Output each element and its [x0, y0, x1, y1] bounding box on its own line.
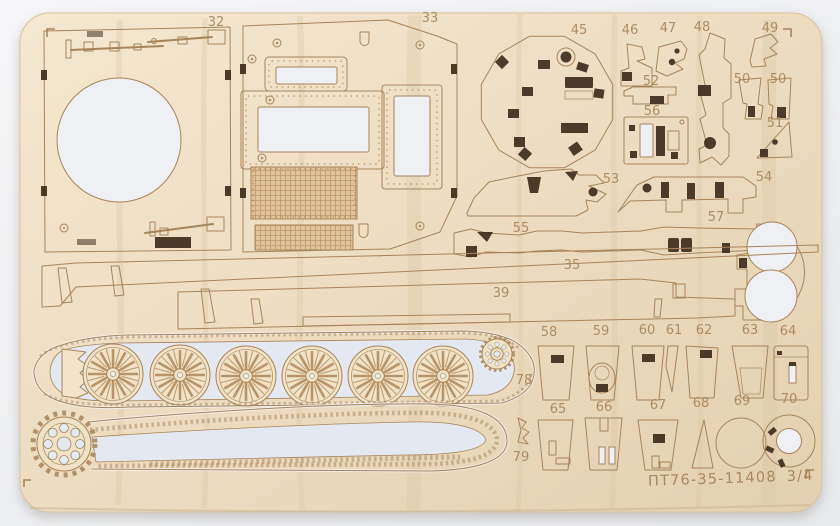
engine-grille — [255, 225, 353, 250]
deck-opening — [276, 67, 337, 84]
part-label-45: 45 — [571, 23, 588, 38]
part-label-39: 39 — [493, 286, 510, 301]
road-wheel — [413, 346, 473, 406]
part-label-63: 63 — [742, 323, 759, 338]
part-label-58: 58 — [541, 325, 558, 340]
part-label-60: 60 — [639, 323, 656, 338]
round-hole — [745, 270, 797, 322]
part-label-70: 70 — [781, 392, 798, 407]
deck-opening — [394, 96, 430, 176]
road-wheel — [83, 344, 143, 404]
road-wheel — [348, 346, 408, 406]
part-label-79: 79 — [513, 450, 530, 465]
part-label-68: 68 — [693, 396, 710, 411]
part-label-53: 53 — [603, 172, 620, 187]
part-label-52: 52 — [643, 74, 660, 89]
part-label-56: 56 — [644, 104, 661, 119]
part-label-61: 61 — [666, 323, 683, 338]
deck-opening — [258, 107, 369, 152]
laser-cut-plywood-sheet-photo: 32 33 45 46 47 48 49 50 50 51 52 56 53 5… — [0, 0, 840, 526]
part-label-55: 55 — [513, 221, 530, 236]
hatch-hole — [57, 78, 181, 202]
part-label-59: 59 — [593, 324, 610, 339]
part-label-65: 65 — [550, 402, 567, 417]
part-label-50a: 50 — [734, 72, 751, 87]
part-label-69: 69 — [734, 394, 751, 409]
engine-grille — [251, 167, 357, 219]
part-label-67: 67 — [650, 398, 667, 413]
part-label-50b: 50 — [770, 72, 787, 87]
part-label-49: 49 — [762, 21, 779, 36]
part-label-48: 48 — [694, 20, 711, 35]
part-label-35: 35 — [564, 258, 581, 273]
part-label-47: 47 — [660, 21, 677, 36]
part-label-57: 57 — [708, 210, 725, 225]
road-wheel — [150, 345, 210, 405]
part-label-33: 33 — [422, 11, 439, 26]
road-wheel — [282, 346, 342, 406]
part-label-64: 64 — [780, 324, 797, 339]
part-label-66: 66 — [596, 400, 613, 415]
road-wheel — [216, 346, 276, 406]
part-label-51: 51 — [767, 116, 784, 131]
part-label-46: 46 — [622, 23, 639, 38]
part-label-78: 78 — [516, 373, 533, 388]
part-label-32: 32 — [208, 15, 225, 30]
part-label-62: 62 — [696, 323, 713, 338]
part-label-54: 54 — [756, 170, 773, 185]
